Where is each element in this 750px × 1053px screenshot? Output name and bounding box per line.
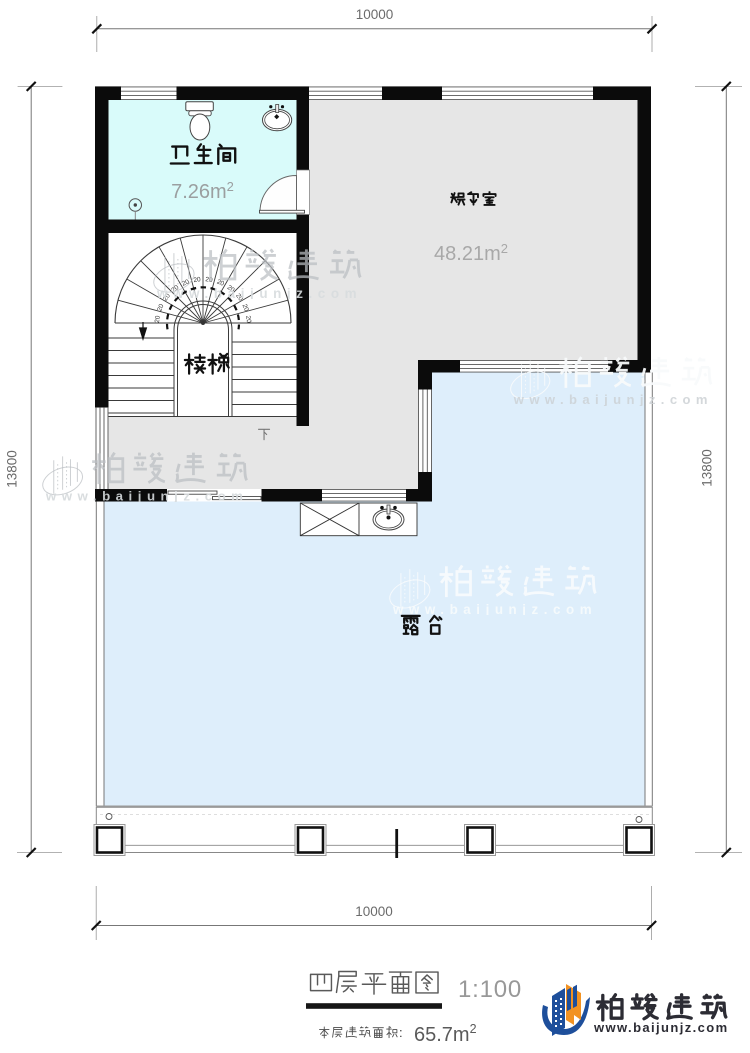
svg-text:www.baijunjz.com: www.baijunjz.com [593,1020,729,1035]
svg-text::: : [399,1025,403,1040]
svg-text:48.21m2: 48.21m2 [434,241,508,265]
svg-text:13800: 13800 [5,450,20,488]
svg-text:20: 20 [154,315,162,323]
svg-text:10000: 10000 [356,7,394,22]
svg-text:10000: 10000 [355,904,393,919]
svg-text:1:100: 1:100 [458,976,522,1003]
svg-text:20: 20 [244,315,252,323]
svg-text:65.7m2: 65.7m2 [414,1022,477,1046]
svg-text:7.26m2: 7.26m2 [171,179,234,203]
svg-text:13800: 13800 [700,449,715,487]
svg-text:20: 20 [193,276,201,284]
